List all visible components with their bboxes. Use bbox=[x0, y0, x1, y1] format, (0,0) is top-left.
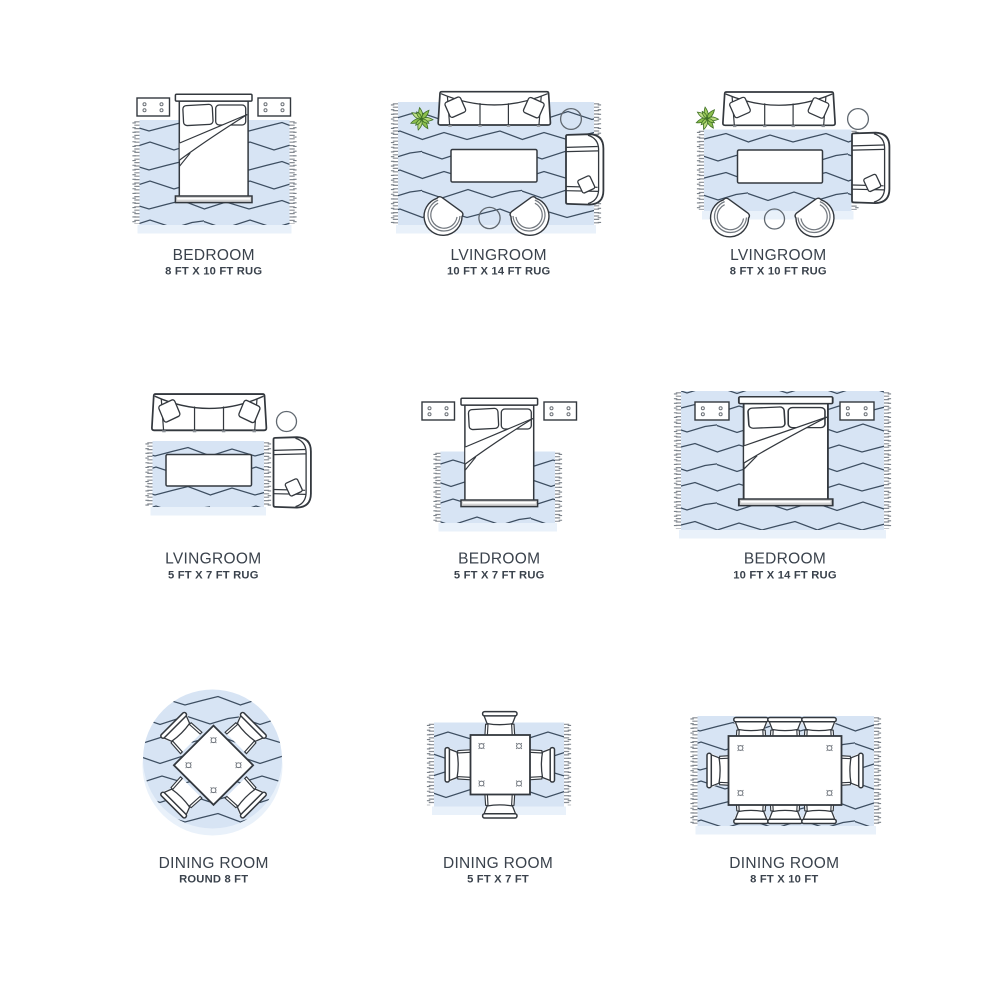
svg-text:8 FT X 10 FT RUG: 8 FT X 10 FT RUG bbox=[730, 266, 827, 278]
svg-text:BEDROOM: BEDROOM bbox=[458, 551, 540, 568]
svg-text:BEDROOM: BEDROOM bbox=[173, 247, 255, 264]
svg-text:LVINGROOM: LVINGROOM bbox=[451, 247, 547, 264]
svg-text:BEDROOM: BEDROOM bbox=[744, 551, 826, 568]
svg-text:5 FT X 7 FT: 5 FT X 7 FT bbox=[467, 874, 529, 886]
svg-text:5 FT X 7 FT RUG: 5 FT X 7 FT RUG bbox=[454, 570, 545, 582]
svg-text:ROUND 8 FT: ROUND 8 FT bbox=[179, 874, 248, 886]
svg-text:5 FT X 7 FT RUG: 5 FT X 7 FT RUG bbox=[168, 570, 259, 582]
svg-text:8 FT X 10 FT: 8 FT X 10 FT bbox=[750, 874, 818, 886]
svg-text:LVINGROOM: LVINGROOM bbox=[165, 551, 261, 568]
svg-text:DINING ROOM: DINING ROOM bbox=[443, 855, 553, 872]
svg-text:8 FT X 10 FT RUG: 8 FT X 10 FT RUG bbox=[165, 266, 262, 278]
svg-text:DINING ROOM: DINING ROOM bbox=[729, 855, 839, 872]
svg-text:DINING ROOM: DINING ROOM bbox=[159, 855, 269, 872]
svg-text:LVINGROOM: LVINGROOM bbox=[730, 247, 826, 264]
svg-text:10 FT X 14 FT RUG: 10 FT X 14 FT RUG bbox=[447, 266, 551, 278]
svg-text:10 FT X 14 FT RUG: 10 FT X 14 FT RUG bbox=[733, 570, 837, 582]
